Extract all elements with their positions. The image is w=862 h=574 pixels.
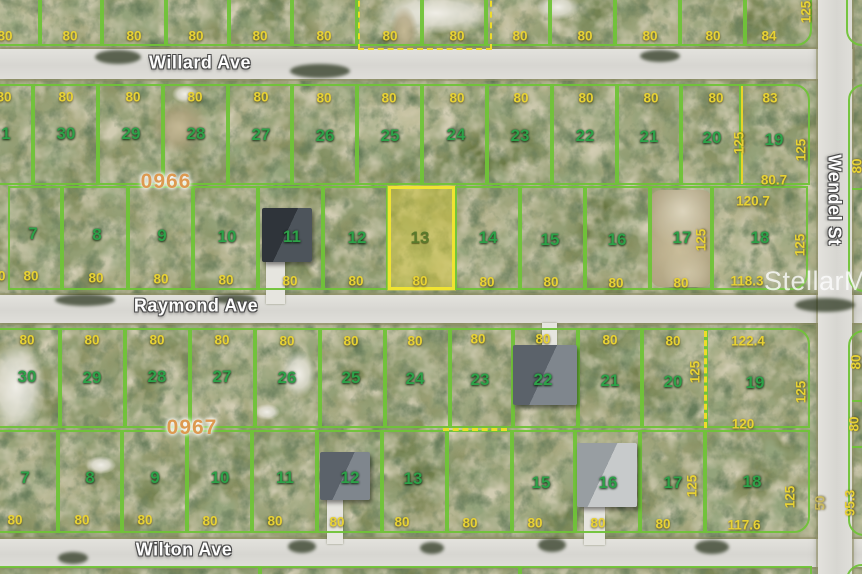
aerial-parcel-map: 1302928272625242322212019789101112131415… (0, 0, 862, 574)
lot-number: 17 (664, 473, 683, 493)
dimension-label: 125 (794, 139, 809, 162)
lot-number: 26 (316, 126, 335, 146)
dimension-label: 122.4 (731, 334, 765, 349)
lot-boundary-stub (852, 446, 862, 448)
dimension-label: 95.3 (843, 490, 858, 516)
lot-number: 10 (218, 227, 237, 247)
dimension-label: 80 (449, 91, 464, 106)
lot-number: 20 (664, 372, 683, 392)
tree-shadow (420, 542, 444, 554)
lot-number: 27 (252, 125, 271, 145)
lot-number: 22 (534, 370, 553, 390)
dimension-label: 80 (0, 90, 12, 105)
dimension-label: 80 (449, 29, 464, 44)
lot-number: 8 (92, 225, 101, 245)
lot-number: 27 (213, 367, 232, 387)
dimension-label: 80 (282, 274, 297, 289)
lot-number: 12 (341, 468, 360, 488)
dimension-label: 80 (279, 334, 294, 349)
dimension-label: 80 (348, 274, 363, 289)
dimension-label: 80 (62, 29, 77, 44)
dimension-label: 80 (394, 515, 409, 530)
dimension-label: 120.7 (736, 194, 770, 209)
lot-number: 11 (276, 468, 294, 488)
dimension-label: 125 (783, 486, 798, 509)
tree-shadow (58, 552, 88, 564)
dimension-label: 80 (381, 91, 396, 106)
lot-number: 15 (532, 473, 551, 493)
dimension-label: 80 (849, 354, 862, 369)
lot-number: 23 (511, 126, 530, 146)
lot-number: 21 (640, 127, 659, 147)
dimension-label: 80 (214, 333, 229, 348)
dimension-label: 80 (329, 515, 344, 530)
lot-number: 26 (278, 368, 297, 388)
subject-boundary-dashed (704, 331, 707, 428)
dimension-label: 80 (23, 269, 38, 284)
lot-boundary-stub (852, 400, 862, 402)
lot-boundary (260, 566, 520, 574)
tree-shadow (95, 50, 141, 64)
lot-number: 22 (576, 126, 595, 146)
subject-boundary-dashed (443, 428, 507, 431)
block-number-0967: 0967 (167, 416, 218, 440)
dimension-label: 80 (479, 275, 494, 290)
tree-shadow (640, 50, 680, 62)
dimension-label: 80 (642, 29, 657, 44)
lot-number: 24 (406, 369, 425, 389)
dimension-label: 125 (732, 132, 747, 155)
street-label-raymond-ave: Raymond Ave (134, 296, 258, 317)
dimension-label: 80 (602, 333, 617, 348)
lot-number: 19 (765, 130, 784, 150)
tree-shadow (55, 294, 115, 306)
subject-boundary-dashed (358, 0, 492, 50)
lot-number: 24 (447, 125, 466, 145)
dimension-label: 80 (252, 29, 267, 44)
lot-number: 21 (601, 371, 620, 391)
lot-number: 10 (211, 468, 230, 488)
lot-number: 14 (479, 228, 498, 248)
dimension-label: 80 (125, 90, 140, 105)
lot-boundary (447, 430, 512, 533)
lot-boundary (846, 0, 862, 46)
lot-number-subject: 13 (411, 228, 430, 248)
dimension-label: 80 (673, 276, 688, 291)
dimension-label: 80 (58, 90, 73, 105)
lot-boundary (0, 566, 260, 574)
dimension-label: 80 (608, 276, 623, 291)
dimension-label: 80 (543, 275, 558, 290)
dimension-label: 80 (153, 272, 168, 287)
tree-shadow (795, 298, 855, 312)
lot-number: 13 (404, 469, 423, 489)
dimension-label: 80 (0, 29, 13, 44)
dimension-label: 80 (126, 29, 141, 44)
dimension-label: 80 (470, 332, 485, 347)
lot-number: 25 (342, 368, 361, 388)
dimension-label: 80 (382, 29, 397, 44)
lot-number: 15 (541, 230, 560, 250)
lot-number: 16 (599, 473, 618, 493)
dimension-label: 80 (149, 333, 164, 348)
dimension-label: 125 (685, 475, 700, 498)
dimension-label: 80 (316, 29, 331, 44)
dimension-label: 80 (512, 29, 527, 44)
dimension-label: 80 (343, 334, 358, 349)
block-number-0966: 0966 (141, 170, 192, 194)
dimension-label: 80 (7, 513, 22, 528)
dimension-label: 80 (218, 273, 233, 288)
lot-number: 8 (85, 468, 94, 488)
dimension-label: 80 (84, 333, 99, 348)
dimension-label: 80 (527, 516, 542, 531)
dimension-label: 80 (412, 274, 427, 289)
dimension-label: 80.7 (761, 173, 787, 188)
dimension-label: 125 (688, 361, 703, 384)
dimension-label: 80 (137, 513, 152, 528)
lot-number: 18 (751, 228, 770, 248)
dimension-label: 80 (847, 416, 862, 431)
dimension-label: 84 (761, 29, 776, 44)
lot-number: 9 (150, 468, 159, 488)
lot-number: 18 (743, 472, 762, 492)
dimension-label: 117.6 (727, 518, 760, 533)
lot-number: 16 (608, 230, 627, 250)
lot-number: 7 (20, 468, 29, 488)
lot-number: 29 (122, 124, 141, 144)
lot-number: 23 (471, 370, 490, 390)
dimension-label: 120 (732, 417, 755, 432)
dimension-label: 80 (0, 269, 6, 284)
street-label-wendel-st: Wendel St (824, 154, 845, 245)
dimension-label: 125 (793, 234, 808, 257)
dimension-label: 80 (88, 271, 103, 286)
dimension-label: 125 (694, 229, 709, 252)
dimension-label: 80 (74, 513, 89, 528)
lot-number: 9 (157, 226, 166, 246)
lot-number: 28 (187, 124, 206, 144)
lot-number: 12 (348, 228, 367, 248)
dimension-label: 80 (188, 29, 203, 44)
lot-number: 28 (148, 367, 167, 387)
dimension-label: 83 (762, 91, 777, 106)
dimension-label: 80 (590, 516, 605, 531)
lot-number: 1 (1, 124, 10, 144)
dimension-label: 80 (655, 517, 670, 532)
tree-shadow (695, 540, 729, 554)
tree-shadow (290, 64, 350, 78)
dimension-label: 80 (202, 514, 217, 529)
tree-shadow (288, 540, 316, 553)
dimension-label: 80 (535, 332, 550, 347)
lot-boundary-stub (852, 188, 862, 190)
dimension-label: 80 (708, 91, 723, 106)
street-label-willard-ave: Willard Ave (149, 53, 251, 74)
lot-number: 17 (673, 228, 692, 248)
dimension-label: 80 (577, 29, 592, 44)
dimension-label: 80 (267, 514, 282, 529)
lot-number: 30 (57, 124, 76, 144)
dimension-label: 80 (187, 90, 202, 105)
dimension-label: 80 (407, 334, 422, 349)
dimension-label: 80 (578, 91, 593, 106)
lot-number: 7 (28, 224, 37, 244)
dimension-label: 80 (665, 334, 680, 349)
dimension-label: 80 (253, 90, 268, 105)
dimension-label: 80 (705, 29, 720, 44)
dimension-label: 80 (462, 516, 477, 531)
stellar-mls-watermark: StellarMLS (764, 266, 862, 297)
dimension-label: 118.3 (730, 274, 763, 289)
tree-shadow (538, 538, 566, 552)
lot-number: 30 (18, 367, 37, 387)
lot-number: 25 (381, 126, 400, 146)
lot-number: 19 (746, 373, 765, 393)
lot-number: 20 (703, 128, 722, 148)
dimension-label: 50 (813, 495, 828, 510)
dimension-label: 80 (19, 333, 34, 348)
dimension-label: 80 (316, 91, 331, 106)
dimension-label: 80 (643, 91, 658, 106)
lot-number: 11 (283, 227, 301, 247)
lot-number: 29 (83, 368, 102, 388)
street-label-wilton-ave: Wilton Ave (136, 540, 233, 561)
dimension-label: 80 (513, 91, 528, 106)
road-raymond-ave (0, 295, 862, 323)
dimension-label: 125 (794, 381, 809, 404)
lot-boundary (520, 566, 812, 574)
dimension-label: 125 (799, 1, 814, 24)
dimension-label: 80 (850, 158, 862, 173)
